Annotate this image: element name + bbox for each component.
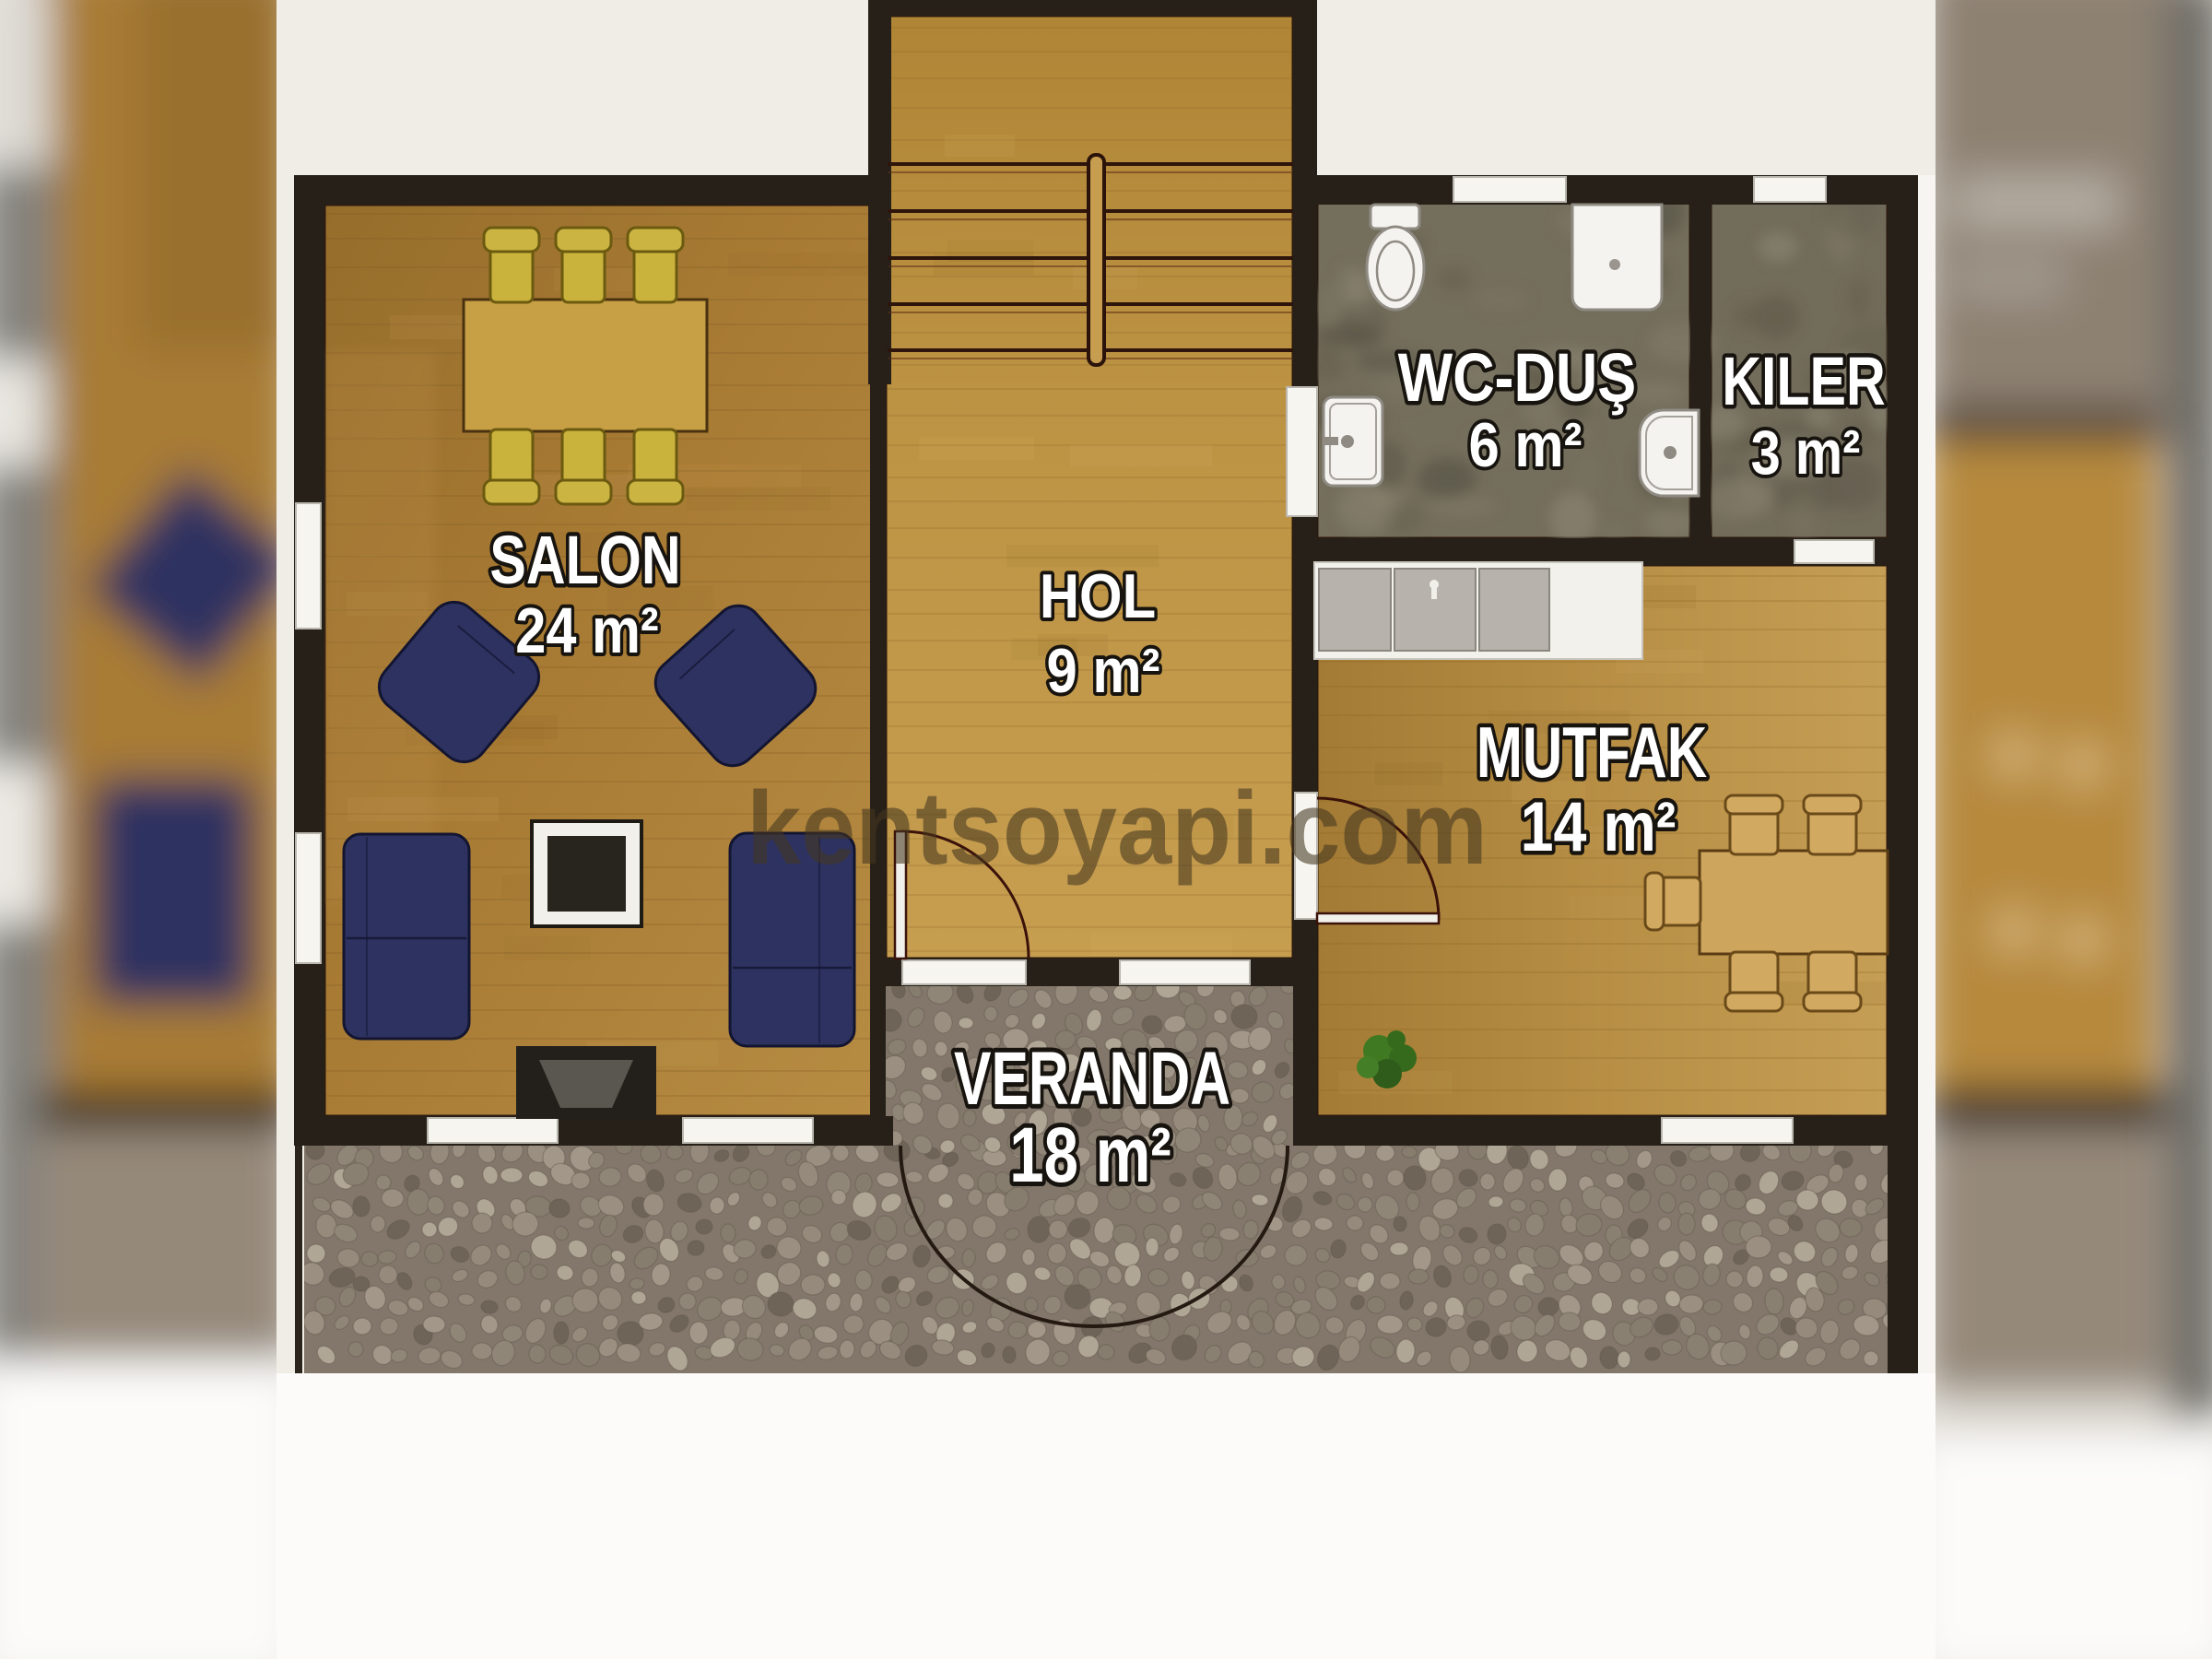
svg-text:KILER: KILER [1722, 344, 1886, 420]
svg-text:kentsoyapi.com: kentsoyapi.com [747, 771, 1488, 887]
svg-text:9 m²: 9 m² [1046, 635, 1159, 705]
svg-text:VERANDA: VERANDA [954, 1037, 1230, 1121]
svg-text:MUTFAK: MUTFAK [1477, 712, 1707, 792]
svg-text:WC-DUŞ: WC-DUŞ [1398, 339, 1636, 416]
svg-text:24 m²: 24 m² [515, 594, 658, 666]
svg-text:3 m²: 3 m² [1751, 418, 1861, 488]
svg-text:SALON: SALON [489, 523, 680, 599]
svg-text:14 m²: 14 m² [1521, 787, 1677, 865]
svg-text:HOL: HOL [1040, 560, 1156, 630]
svg-text:18 m²: 18 m² [1009, 1112, 1171, 1199]
svg-text:6 m²: 6 m² [1468, 409, 1582, 479]
